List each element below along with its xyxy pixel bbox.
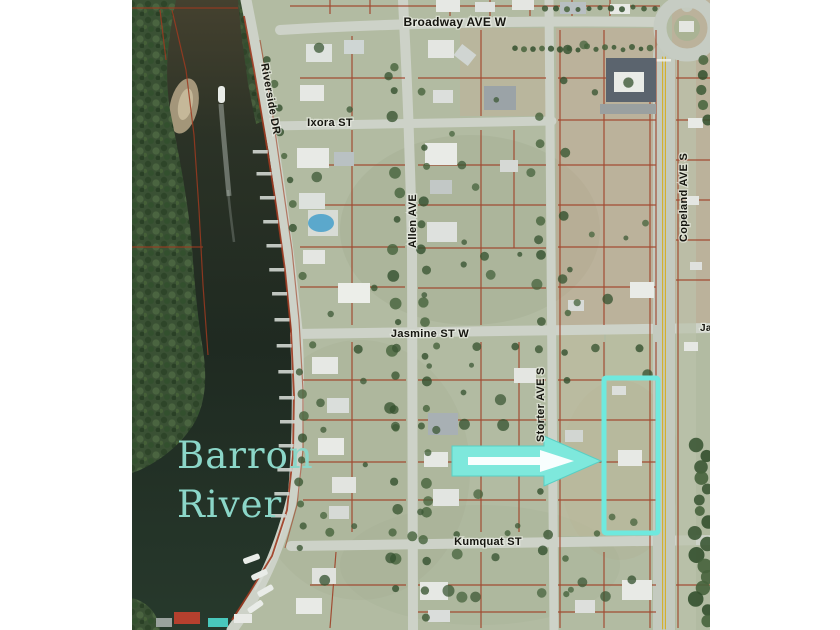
- building: [500, 160, 518, 172]
- street-label-kumquat: Kumquat ST: [454, 536, 522, 548]
- building: [484, 86, 516, 110]
- street-label-ixora: Ixora ST: [307, 117, 353, 129]
- dock: [278, 370, 293, 374]
- building: [622, 580, 652, 600]
- building: [303, 250, 325, 264]
- street-label-jasmine: Jasmine ST W: [391, 328, 469, 340]
- street-label-allen: Allen AVE: [407, 194, 419, 248]
- dock: [266, 244, 281, 248]
- street-label-storter: Storter AVE S: [535, 367, 547, 442]
- dock: [280, 420, 295, 424]
- building: [338, 283, 370, 303]
- building: [565, 430, 583, 442]
- building: [433, 90, 453, 103]
- river-label-line1: Barron: [177, 434, 314, 477]
- building: [344, 40, 364, 54]
- swimming-pool: [308, 214, 334, 232]
- building: [684, 342, 698, 351]
- building: [436, 0, 460, 12]
- building: [318, 438, 344, 455]
- dock: [272, 292, 287, 296]
- dock: [260, 196, 275, 200]
- dock: [275, 318, 290, 322]
- crosswalk: [656, 59, 671, 62]
- building: [575, 600, 595, 613]
- building: [428, 610, 450, 622]
- building: [430, 180, 452, 194]
- building: [512, 0, 534, 10]
- street-label-copeland: Copeland AVE S: [678, 153, 690, 242]
- building: [428, 40, 454, 58]
- street-label-broadway: Broadway AVE W: [404, 15, 507, 29]
- dock: [279, 396, 294, 400]
- building: [329, 506, 349, 519]
- road-jasmine: [295, 328, 710, 334]
- marina-structure: [208, 618, 228, 627]
- building: [560, 2, 586, 14]
- building: [612, 386, 626, 395]
- marina-structure: [156, 618, 172, 627]
- building: [514, 368, 536, 383]
- marina-structure: [174, 612, 200, 624]
- building: [332, 477, 356, 493]
- dock: [253, 150, 268, 154]
- river-label-line2: River: [177, 483, 282, 526]
- map-image: Barron River Broadway AVE W Ixora ST Jas…: [0, 0, 840, 630]
- building: [688, 118, 703, 128]
- building: [300, 85, 324, 101]
- building: [428, 413, 458, 435]
- marina-structure: [234, 614, 252, 623]
- building: [630, 282, 654, 298]
- building: [433, 489, 459, 506]
- dock: [269, 268, 284, 272]
- building: [297, 148, 329, 168]
- building: [299, 193, 325, 209]
- building: [600, 104, 656, 114]
- dock: [263, 220, 278, 224]
- building: [690, 262, 702, 270]
- dock: [256, 172, 271, 176]
- aerial-map: Barron River Broadway AVE W Ixora ST Jas…: [0, 0, 840, 630]
- building: [327, 398, 349, 413]
- building: [296, 598, 322, 614]
- building: [312, 357, 338, 374]
- building: [334, 152, 354, 166]
- building: [475, 2, 495, 12]
- building: [618, 450, 642, 466]
- map-content: Barron River Broadway AVE W Ixora ST Jas…: [132, 0, 715, 630]
- building: [425, 143, 457, 165]
- roundabout-island-building: [679, 21, 694, 32]
- dock: [277, 344, 292, 348]
- building: [427, 222, 457, 242]
